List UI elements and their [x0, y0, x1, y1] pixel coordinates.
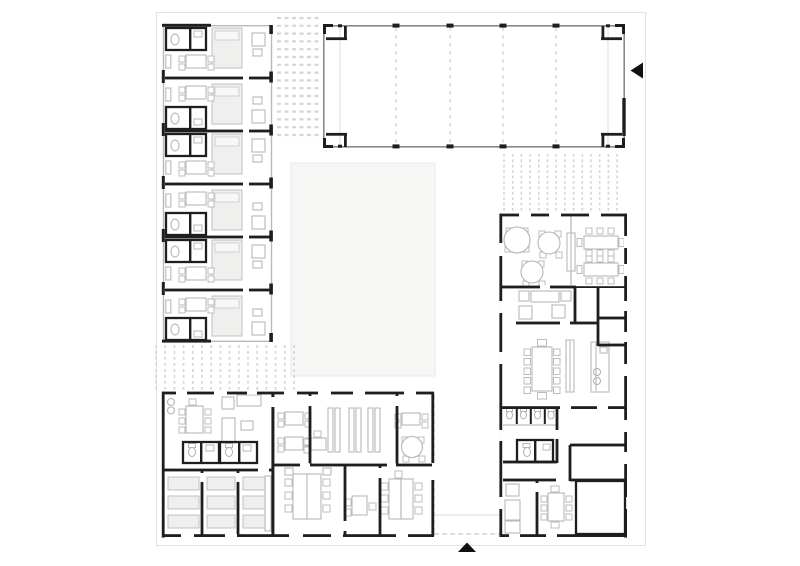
floor-plan-drawing: [0, 0, 800, 566]
floor-plan-page: [0, 0, 800, 566]
hall-bay-line: [396, 27, 556, 146]
hall-outer-wall: [323, 25, 625, 147]
entrance-arrow-south: [458, 543, 476, 553]
column-tick: [338, 24, 610, 149]
courtyard-lawn: [291, 163, 435, 376]
hall-structure-line: [340, 27, 608, 146]
canopy-dashed-line: [434, 395, 500, 534]
entrance-arrow-east: [631, 63, 644, 79]
